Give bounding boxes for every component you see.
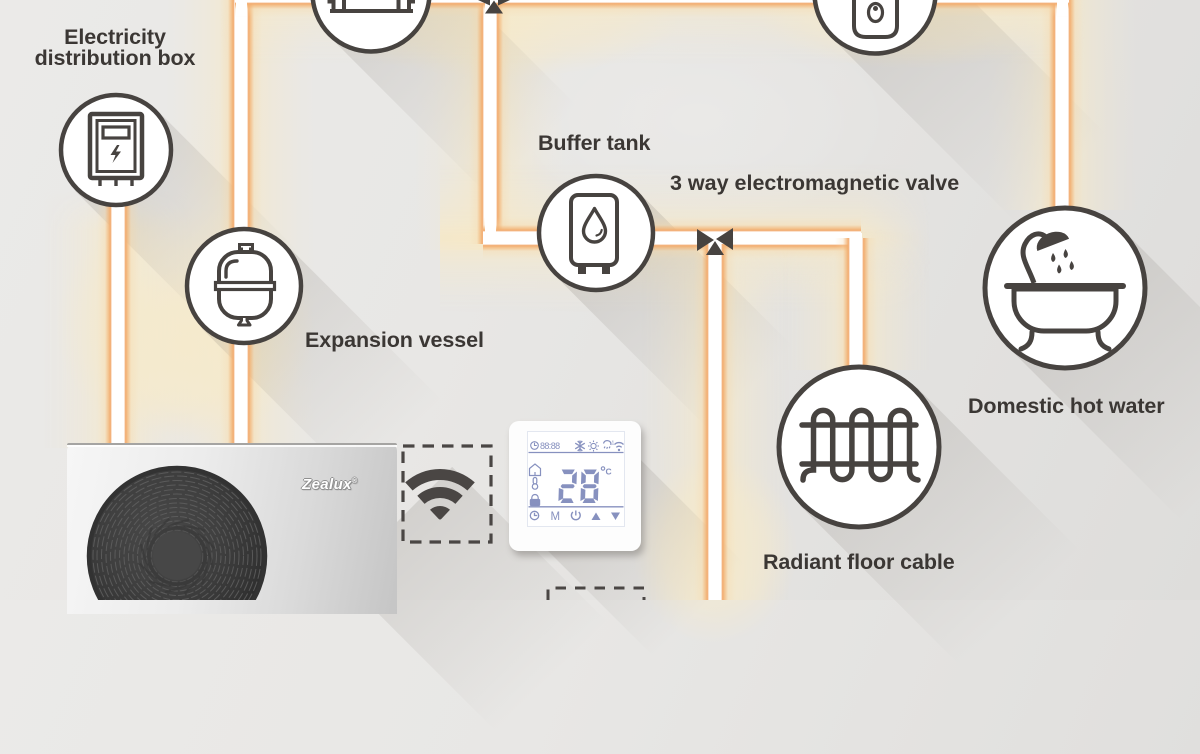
svg-text:88:88: 88:88 bbox=[540, 441, 560, 451]
svg-text:M: M bbox=[551, 511, 561, 523]
svg-text:1: 1 bbox=[612, 441, 615, 447]
svg-text:C: C bbox=[606, 467, 612, 477]
